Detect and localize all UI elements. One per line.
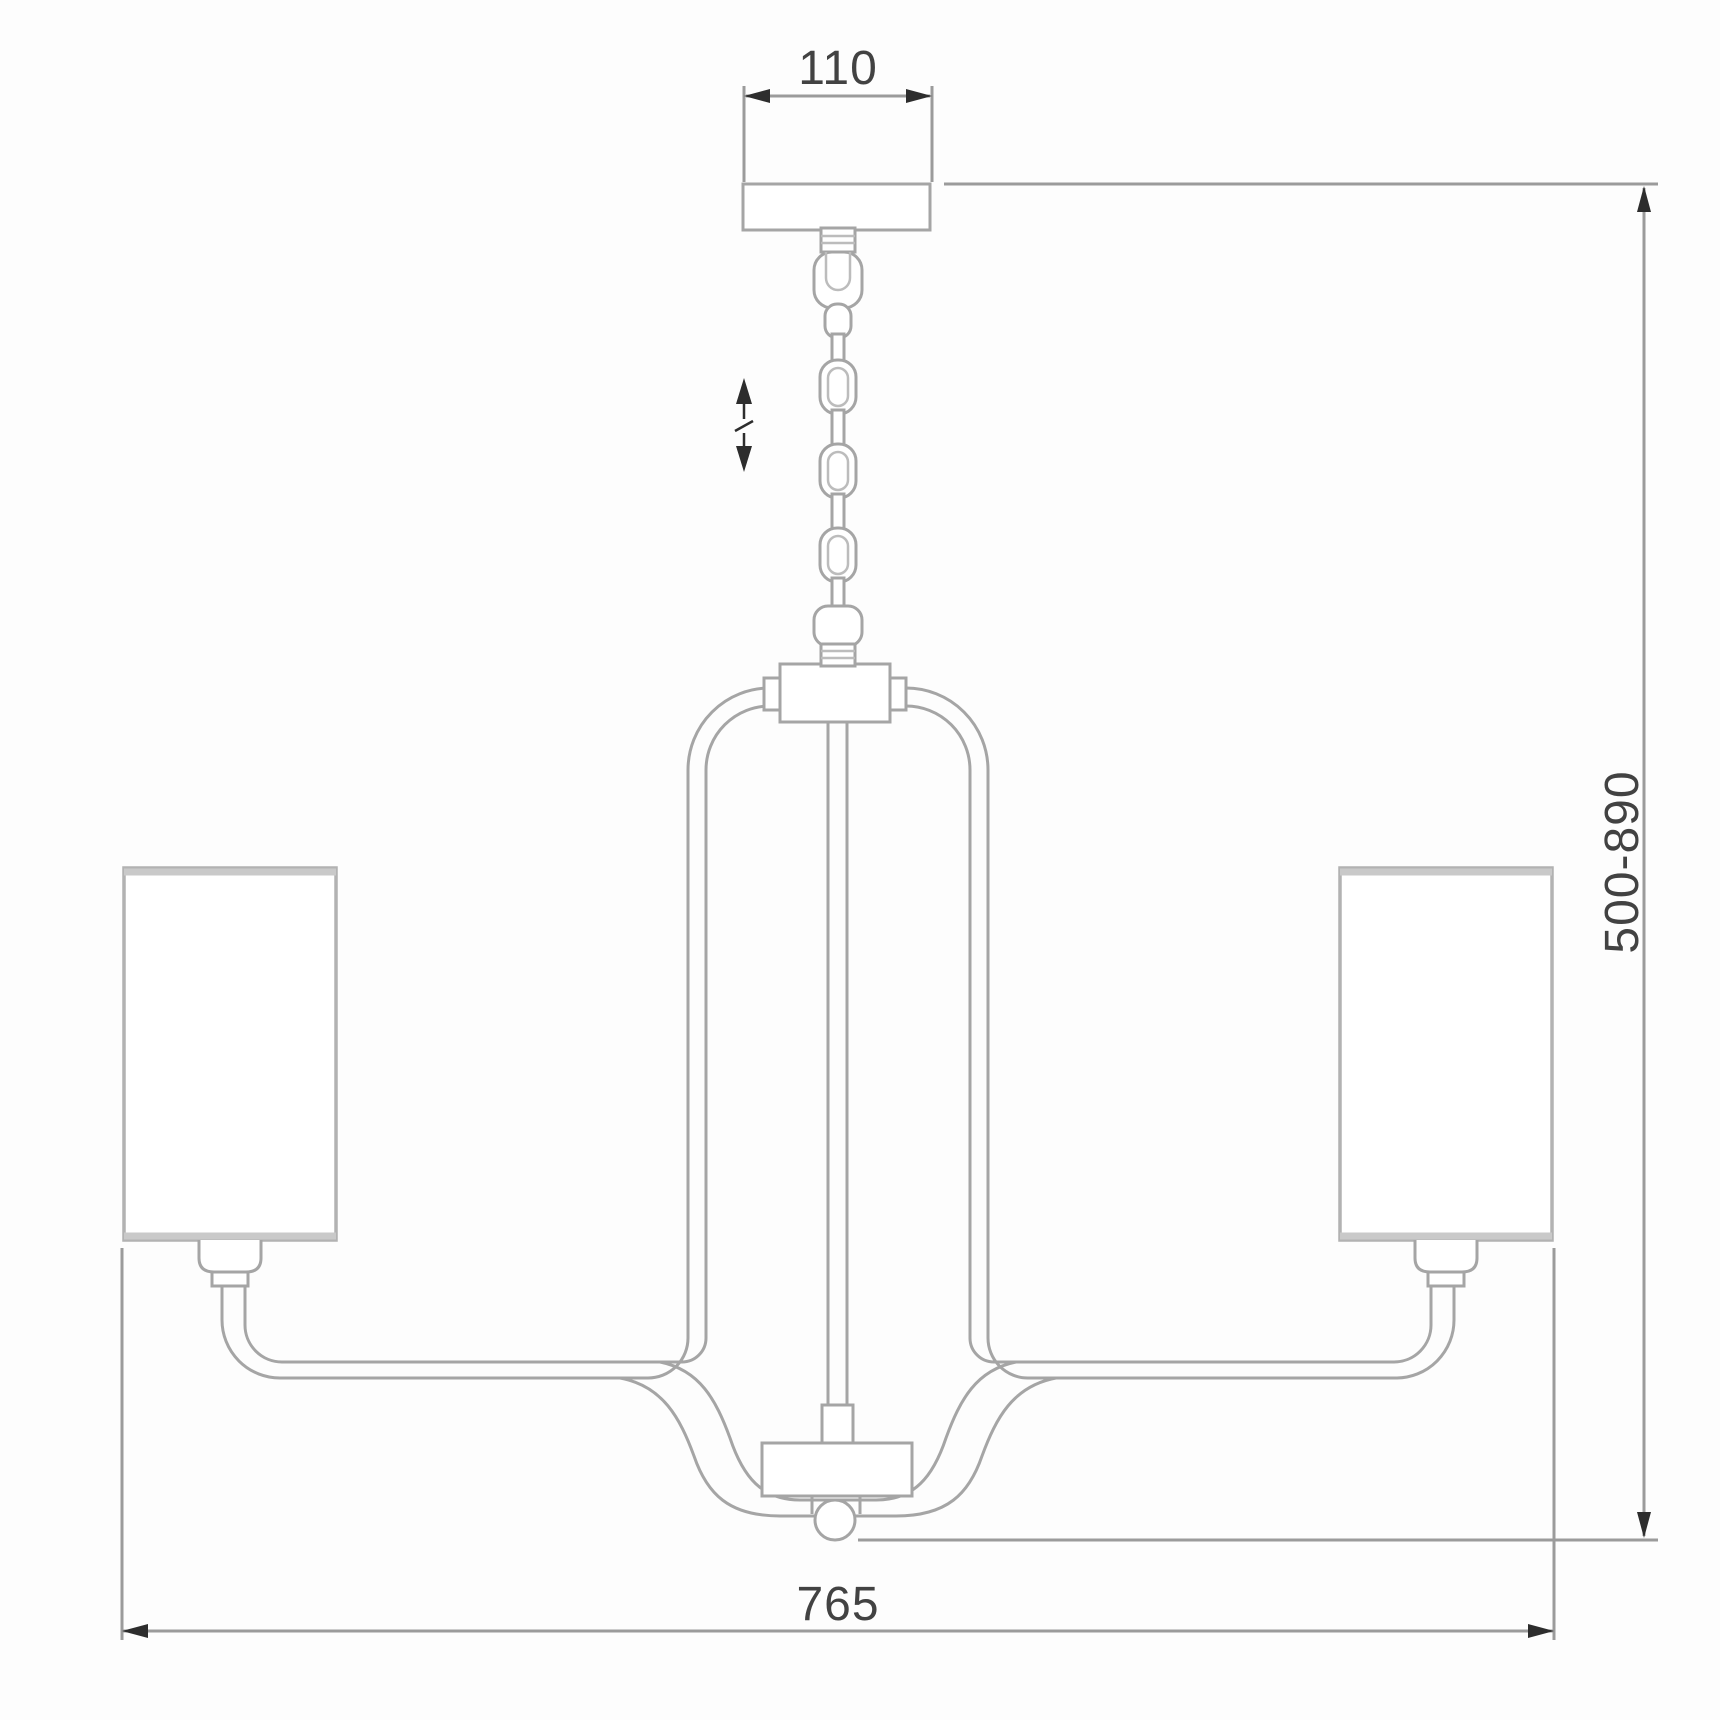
canopy-width-label: 110 [798,42,878,95]
right-socket-neck [1428,1272,1464,1286]
right-socket-cup [1415,1240,1477,1272]
bottom-hub-body [762,1443,912,1496]
right-arm-outer [1028,1286,1454,1378]
finial-knob [815,1500,855,1540]
right-swoop-outer [896,1378,1056,1516]
dimension-drawing: 110 500-890 765 [0,0,1720,1720]
canopy-width-dimension: 110 [744,42,932,182]
top-hub-stub-right [890,678,906,710]
chain-top-clevis [814,252,862,308]
left-socket [199,1240,261,1286]
right-shade [1340,868,1552,1240]
frame-ring [648,688,1028,1378]
chain-link-narrow [832,494,844,532]
overall-height-label: 500-890 [1596,770,1649,953]
chain-link-narrow [832,410,844,448]
left-swoop-outer [620,1378,780,1516]
right-arm-inner [994,1286,1431,1362]
center-rod [822,722,853,1443]
top-hub [764,664,906,722]
adjust-break-tick [735,421,753,431]
top-hub-stub-left [764,678,780,710]
right-arm [994,1286,1454,1378]
right-shade-body [1340,868,1552,1240]
overall-width-label: 765 [796,1578,879,1631]
right-dimension-arrowhead-icon [1528,1624,1554,1638]
adjustable-height-icon [735,378,753,472]
left-socket-neck [212,1272,248,1286]
left-socket-cup [199,1240,261,1272]
bottom-hub [762,1443,912,1540]
chain-bottom-thread [821,644,855,666]
frame-ring-inner [682,706,994,1362]
rod-end-coupler [822,1405,853,1443]
left-shade-body [124,868,336,1240]
right-dimension-arrowhead-icon [906,89,932,103]
top-dimension-arrowhead-icon [1637,186,1651,212]
overall-height-dimension: 500-890 [858,184,1658,1540]
left-shade [124,868,336,1240]
left-arm [222,1286,682,1378]
chain-bottom-clevis [814,606,862,646]
down-arrow-icon [736,446,752,472]
right-socket [1415,1240,1477,1286]
left-arm-outer [222,1286,648,1378]
top-hub-body [780,664,890,722]
canopy-body [743,184,930,230]
chain-top-thread [821,228,855,252]
ceiling-canopy [743,184,930,230]
up-arrow-icon [736,378,752,404]
left-arm-inner [245,1286,682,1362]
suspension-chain [814,228,862,666]
left-dimension-arrowhead-icon [122,1624,148,1638]
bottom-dimension-arrowhead-icon [1637,1512,1651,1538]
left-dimension-arrowhead-icon [744,89,770,103]
